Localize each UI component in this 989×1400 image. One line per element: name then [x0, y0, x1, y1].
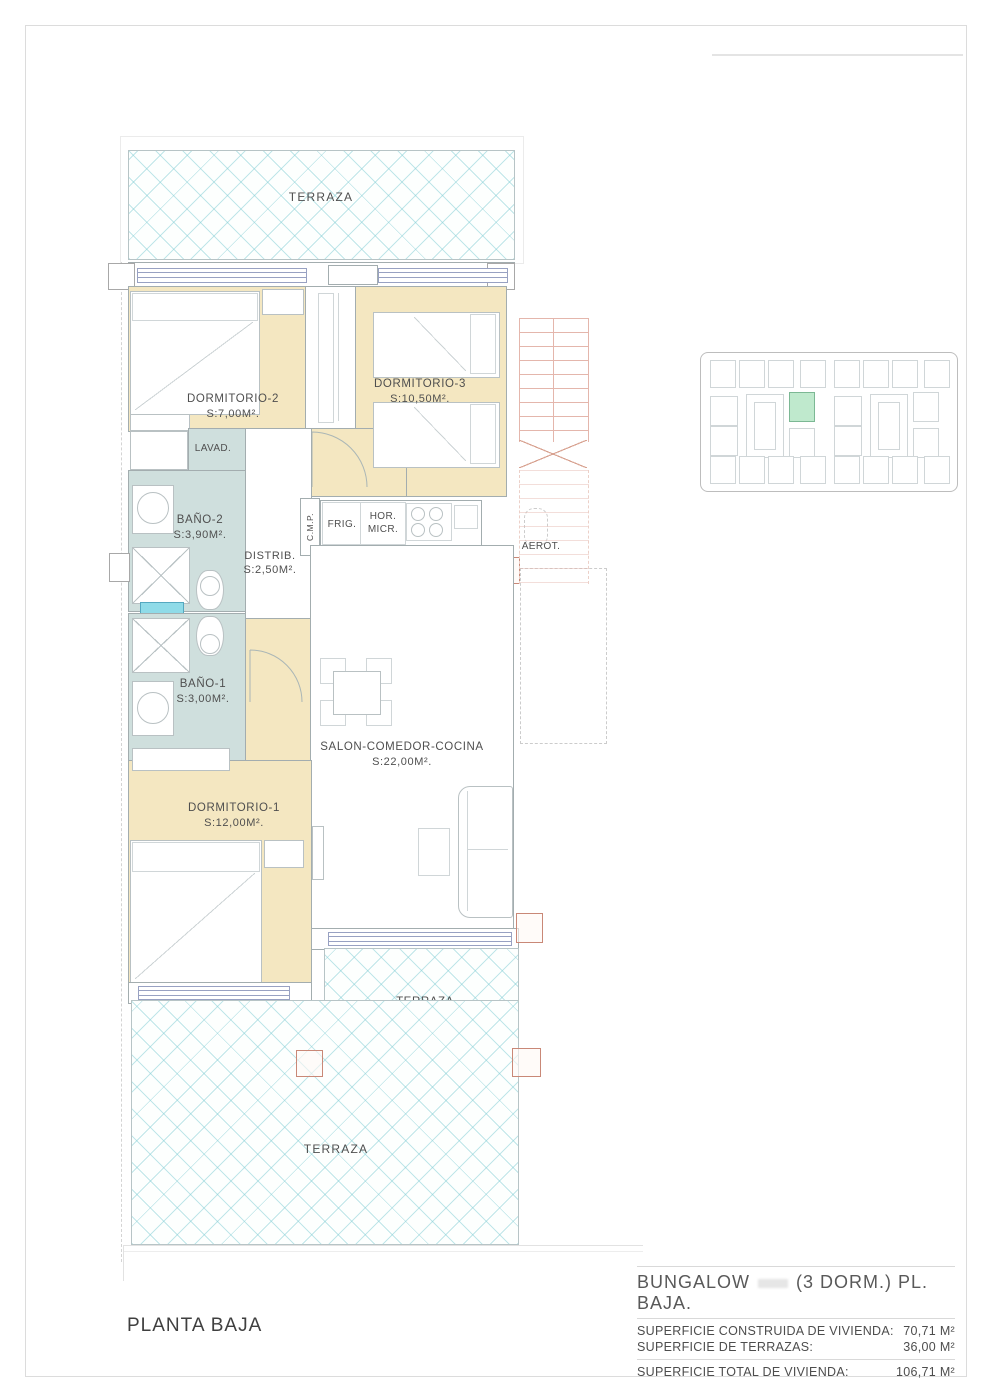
bed-fold-line: [414, 317, 466, 371]
site-unit: [834, 426, 862, 456]
sofa: [458, 786, 513, 918]
cmp-label: C.M.P.: [305, 513, 315, 541]
fridge-label: FRIG.: [328, 518, 357, 531]
surface-value: 36,00 M²: [903, 1340, 955, 1354]
wardrobe: [305, 286, 357, 430]
bed-pillow: [132, 842, 260, 872]
title-block: BUNGALOW(3 DORM.) PL. BAJA. SUPERFICIE C…: [637, 1266, 955, 1379]
bed-pillow: [470, 314, 496, 374]
drawing-sheet: TERRAZA DORMITORIO-2 S:7,00M².: [0, 0, 989, 1400]
site-unit-highlighted: [789, 392, 815, 422]
title-rule: [637, 1266, 955, 1267]
bed-pillow: [132, 293, 258, 321]
dorm1-window: [138, 986, 290, 1000]
title-rule: [637, 1318, 955, 1319]
site-unit: [863, 456, 889, 484]
wardrobe-line: [338, 293, 339, 421]
sofa-line: [468, 849, 508, 850]
terrace-pillar: [516, 913, 543, 943]
shower: [132, 547, 190, 604]
bungalow-label: BUNGALOW: [637, 1272, 750, 1292]
toilet-seat: [200, 576, 220, 596]
door-arc: [311, 432, 368, 489]
bed-pillow: [470, 404, 496, 464]
bedroom3-window: [378, 268, 508, 283]
site-unit: [924, 456, 950, 484]
shower: [132, 618, 190, 673]
surface-total-row: SUPERFICIE TOTAL DE VIVIENDA: 106,71 M²: [637, 1365, 955, 1379]
floor-plan: TERRAZA DORMITORIO-2 S:7,00M².: [0, 0, 989, 1400]
door-arc: [249, 650, 304, 705]
surface-total-value: 106,71 M²: [896, 1365, 955, 1379]
wardrobe-rod: [318, 293, 334, 423]
exterior-pillar: [109, 553, 130, 582]
site-unit: [892, 456, 918, 484]
site-unit: [913, 428, 939, 458]
site-unit: [892, 360, 918, 388]
site-unit: [710, 456, 736, 484]
burner: [429, 507, 443, 521]
boundary-line: [121, 262, 122, 1262]
title-rule: [637, 1359, 955, 1360]
toilet-seat: [200, 634, 220, 654]
site-unit: [710, 396, 738, 426]
washbasin-bowl: [137, 692, 169, 724]
washbasin-bowl: [137, 492, 169, 524]
oven-label: HOR. MICR.: [368, 510, 398, 536]
bedroom2-window: [137, 268, 307, 283]
site-unit: [710, 360, 736, 388]
site-pool-inner: [878, 402, 900, 450]
dormitorio2-label: DORMITORIO-2 S:7,00M².: [187, 392, 279, 421]
title-block-title: BUNGALOW(3 DORM.) PL. BAJA.: [637, 1272, 955, 1314]
sofa-line: [467, 791, 468, 911]
redacted-model-name: [758, 1279, 788, 1288]
bed-fold-line: [135, 873, 255, 979]
surface-row: SUPERFICIE CONSTRUIDA DE VIVIENDA: 70,71…: [637, 1324, 955, 1338]
wall-pier: [328, 265, 378, 285]
site-unit: [834, 396, 862, 426]
site-unit: [800, 360, 826, 388]
bed: [130, 840, 262, 984]
stair-center-line: [553, 318, 554, 442]
ground-line-v: [123, 1245, 124, 1281]
site-unit: [768, 360, 794, 388]
site-unit: [924, 360, 950, 388]
bano1-label: BAÑO-1 S:3,00M².: [176, 677, 229, 706]
burner: [429, 523, 443, 537]
site-unit: [739, 456, 765, 484]
bench: [130, 414, 190, 431]
bed-fold-line: [414, 407, 466, 461]
counter-drainer: [454, 505, 478, 529]
surface-value: 70,71 M²: [903, 1324, 955, 1338]
coffee-table: [418, 828, 450, 876]
tv-sideboard: [312, 826, 324, 880]
terrace-pillar: [296, 1050, 323, 1077]
salon-window: [328, 932, 512, 946]
distribuidor-label: DISTRIB. S:2,50M².: [243, 549, 296, 578]
site-unit: [710, 426, 738, 456]
staircase-dashed: [519, 470, 589, 584]
dormitorio3-label: DORMITORIO-3 S:10,50M².: [374, 377, 466, 406]
surface-row: SUPERFICIE DE TERRAZAS: 36,00 M²: [637, 1340, 955, 1354]
site-unit: [739, 360, 765, 388]
site-key-plan: [700, 352, 958, 492]
burner: [411, 523, 425, 537]
single-bed: [373, 312, 500, 378]
burner: [411, 507, 425, 521]
staircase: [519, 318, 589, 442]
lavadero-label: LAVAD.: [195, 442, 232, 455]
site-unit: [913, 392, 939, 422]
dormitorio1-label: DORMITORIO-1 S:12,00M².: [188, 801, 280, 830]
site-unit: [834, 456, 860, 484]
site-unit: [834, 360, 860, 388]
dresser: [132, 748, 230, 771]
site-unit: [789, 428, 815, 458]
plan-name: PLANTA BAJA: [127, 1315, 262, 1337]
stair-break-mark: [519, 440, 587, 468]
dining-table: [333, 671, 381, 715]
salon-label: SALON-COMEDOR-COCINA S:22,00M².: [320, 740, 483, 769]
site-unit: [863, 360, 889, 388]
ground-line: [123, 1251, 643, 1252]
surface-label: SUPERFICIE DE TERRAZAS:: [637, 1340, 813, 1354]
terrace-top-label: TERRAZA: [289, 190, 353, 206]
site-unit: [768, 456, 794, 484]
site-unit: [800, 456, 826, 484]
ground-line: [123, 1245, 643, 1246]
porch-roof-outline: [520, 568, 607, 744]
surface-label: SUPERFICIE CONSTRUIDA DE VIVIENDA:: [637, 1324, 894, 1338]
nightstand: [264, 840, 304, 868]
site-pool-inner: [754, 402, 776, 450]
bano2-label: BAÑO-2 S:3,90M².: [173, 513, 226, 542]
nightstand: [262, 289, 304, 315]
terrace-pillar: [512, 1048, 541, 1077]
washer: [130, 431, 188, 470]
surface-total-label: SUPERFICIE TOTAL DE VIVIENDA:: [637, 1365, 849, 1379]
single-bed: [373, 402, 500, 468]
terrace-bottom-label: TERRAZA: [304, 1142, 368, 1158]
terrace-bottom-floor: [131, 1000, 519, 1245]
